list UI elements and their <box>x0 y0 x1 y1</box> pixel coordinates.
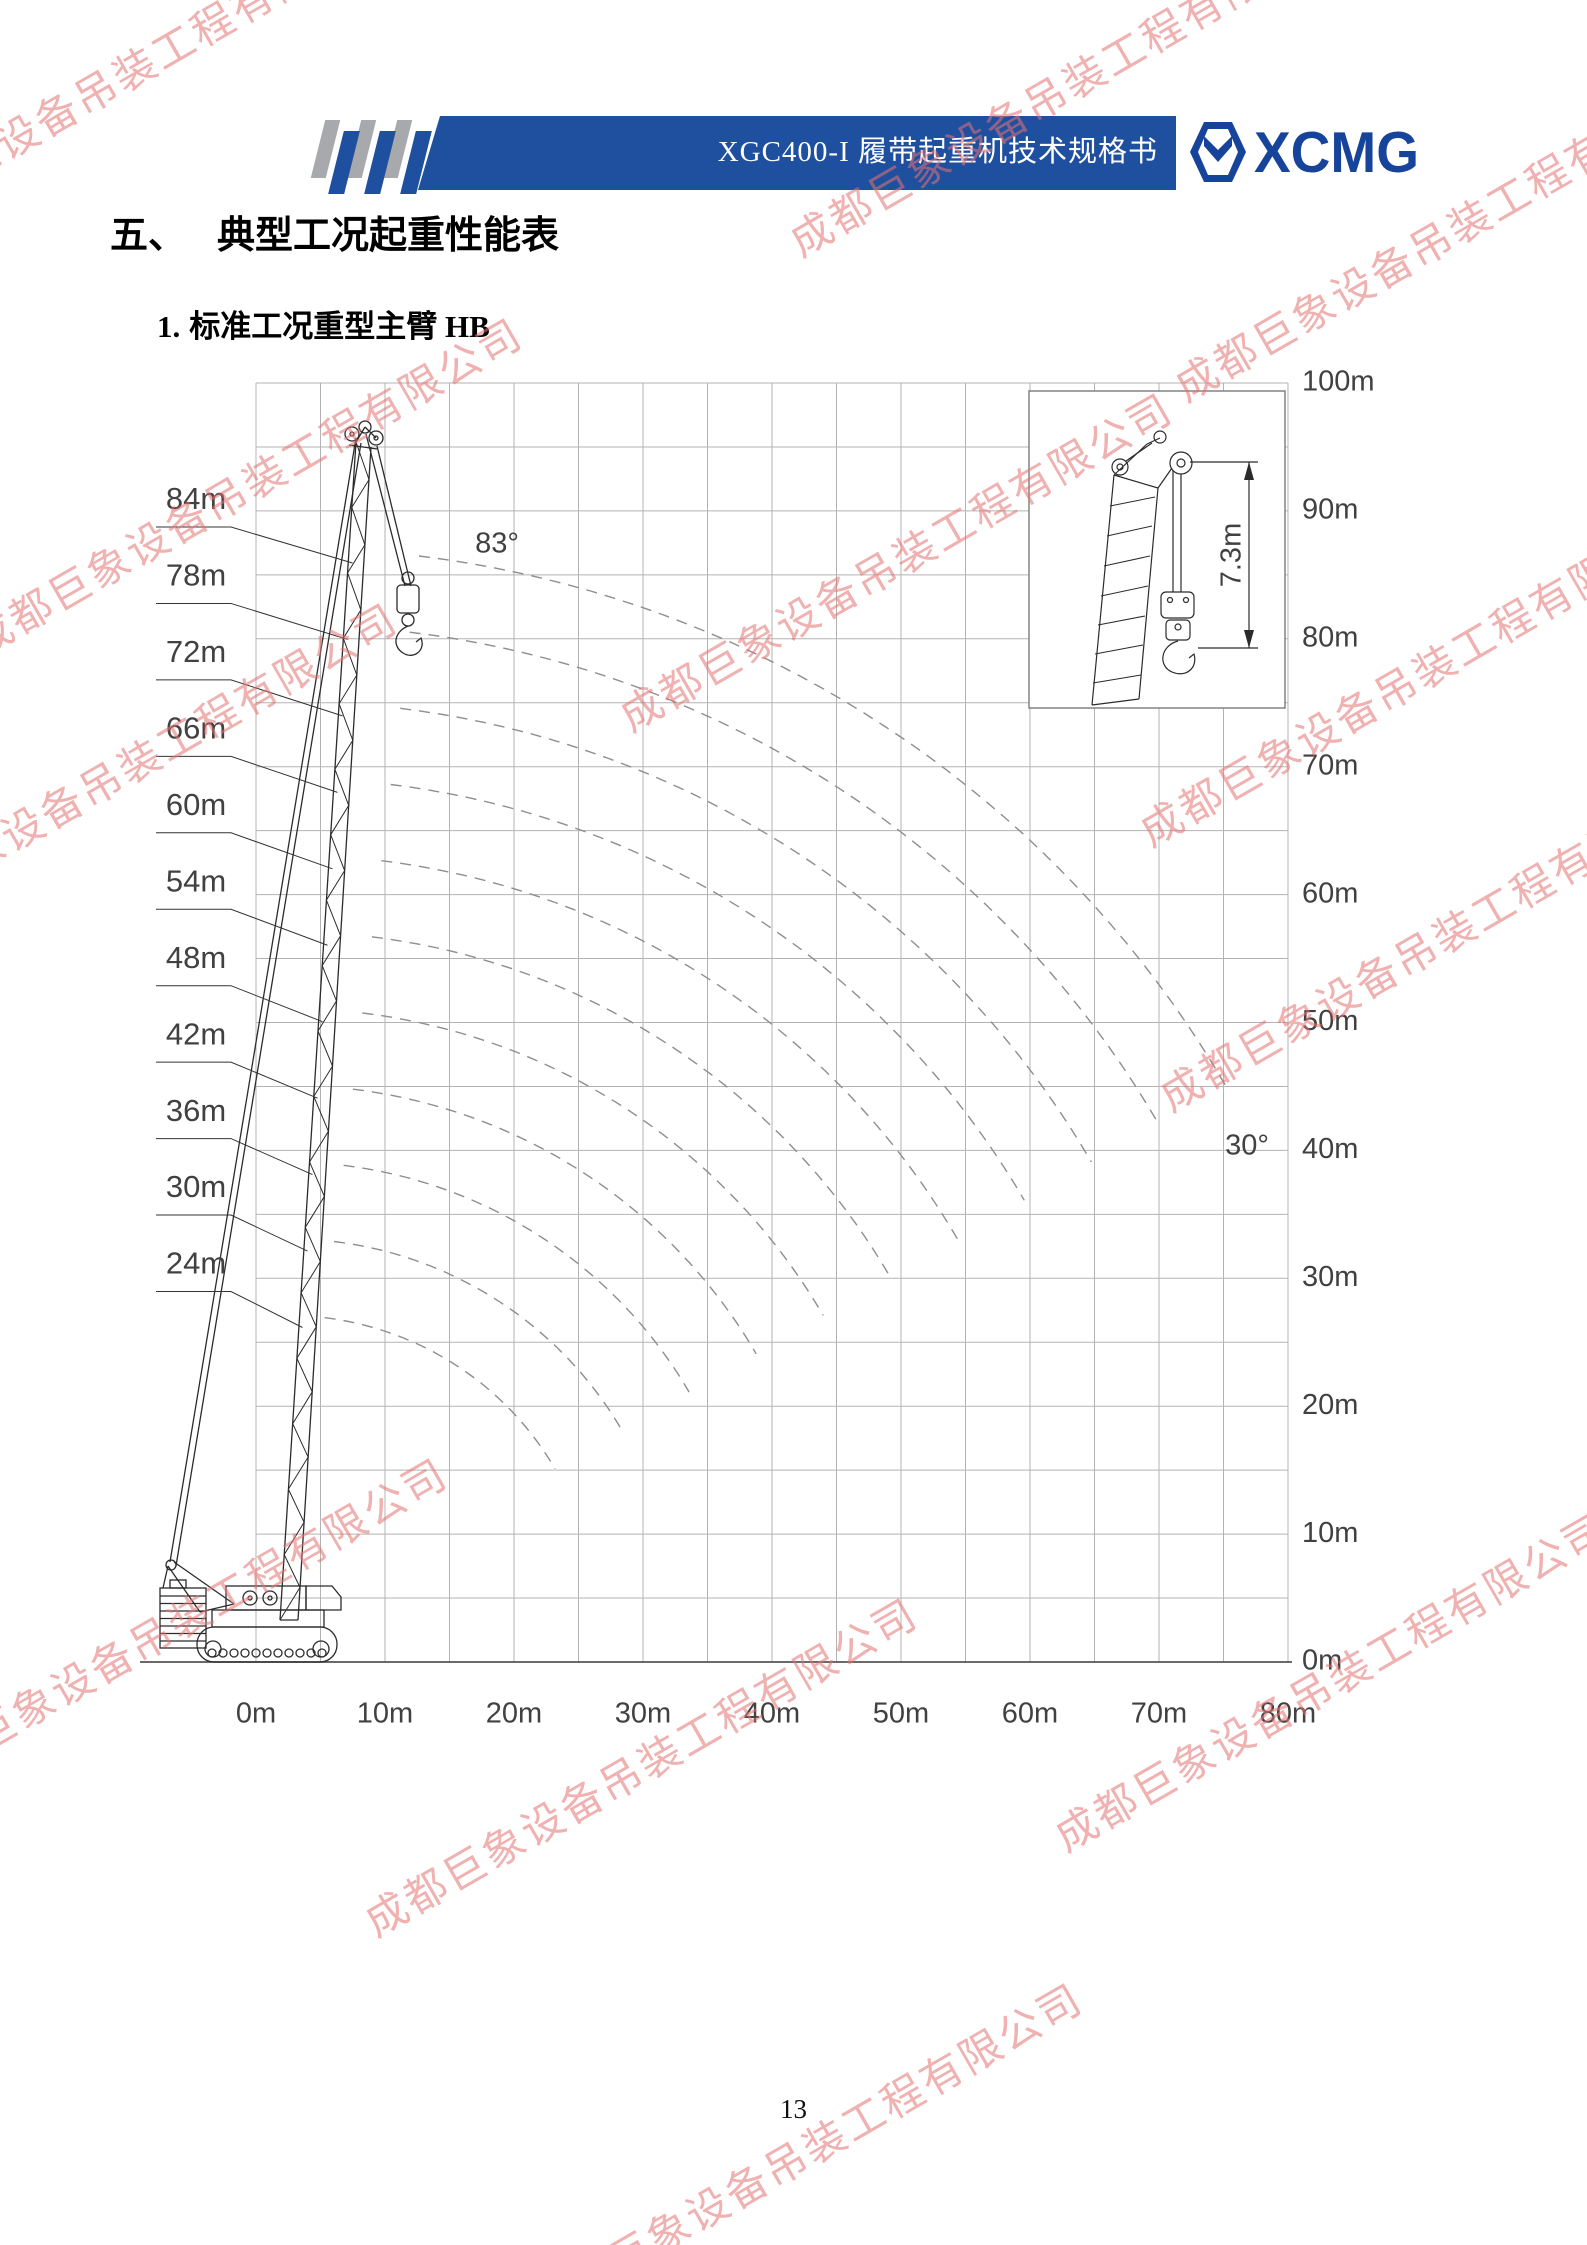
working-range-chart: 84m78m72m66m60m54m48m42m36m30m24m7.3m0m1… <box>0 0 1587 2245</box>
y-tick-label-20m: 20m <box>1302 1389 1358 1421</box>
boom-length-label-42m: 42m <box>166 1016 226 1051</box>
x-tick-label-0m: 0m <box>236 1698 276 1730</box>
min-boom-angle-label: 30° <box>1225 1130 1269 1162</box>
boom-tip-curve-60m <box>381 861 957 1239</box>
boom-length-label-30m: 30m <box>166 1169 226 1204</box>
boom-length-label-72m: 72m <box>166 634 226 669</box>
max-boom-angle-label: 83° <box>475 528 519 560</box>
y-tick-label-40m: 40m <box>1302 1133 1358 1165</box>
hook-block <box>397 585 419 613</box>
y-tick-label-30m: 30m <box>1302 1261 1358 1293</box>
boom-tip-curve-72m <box>400 708 1091 1162</box>
y-tick-label-60m: 60m <box>1302 877 1358 909</box>
x-tick-label-60m: 60m <box>1002 1698 1058 1730</box>
boom-length-label-78m: 78m <box>166 558 226 593</box>
hoist-ropes <box>366 434 411 586</box>
leader-line <box>156 1292 303 1328</box>
x-tick-label-50m: 50m <box>873 1698 929 1730</box>
y-tick-label-0m: 0m <box>1302 1645 1342 1677</box>
boom-tip-curve-24m <box>325 1318 555 1469</box>
boom-lacing <box>280 442 369 1620</box>
page-number: 13 <box>0 2094 1587 2125</box>
boom-tip-curve-48m <box>362 1013 823 1315</box>
x-tick-label-40m: 40m <box>744 1698 800 1730</box>
boom-tip-curve-42m <box>353 1089 756 1354</box>
x-tick-label-80m: 80m <box>1260 1698 1316 1730</box>
boom-length-label-36m: 36m <box>166 1093 226 1128</box>
x-tick-label-70m: 70m <box>1131 1698 1187 1730</box>
pendant-ropes <box>170 438 361 1566</box>
boom-length-label-48m: 48m <box>166 940 226 975</box>
y-tick-label-80m: 80m <box>1302 621 1358 653</box>
document-page: XGC400-I 履带起重机技术规格书 XCMG 五、典型工况起重性能表 1.标… <box>0 0 1587 2245</box>
y-tick-label-70m: 70m <box>1302 749 1358 781</box>
boom-length-label-84m: 84m <box>166 481 226 516</box>
x-tick-label-20m: 20m <box>486 1698 542 1730</box>
boom-length-label-60m: 60m <box>166 787 226 822</box>
x-tick-label-30m: 30m <box>615 1698 671 1730</box>
y-tick-label-50m: 50m <box>1302 1005 1358 1037</box>
hook-icon <box>396 626 422 655</box>
y-tick-label-90m: 90m <box>1302 494 1358 526</box>
y-tick-label-10m: 10m <box>1302 1517 1358 1549</box>
y-tick-label-100m: 100m <box>1302 366 1375 398</box>
boom-length-label-54m: 54m <box>166 863 226 898</box>
inset-dimension-label: 7.3m <box>1216 523 1248 587</box>
boom-length-label-66m: 66m <box>166 711 226 746</box>
boom-length-label-24m: 24m <box>166 1246 226 1281</box>
x-tick-label-10m: 10m <box>357 1698 413 1730</box>
